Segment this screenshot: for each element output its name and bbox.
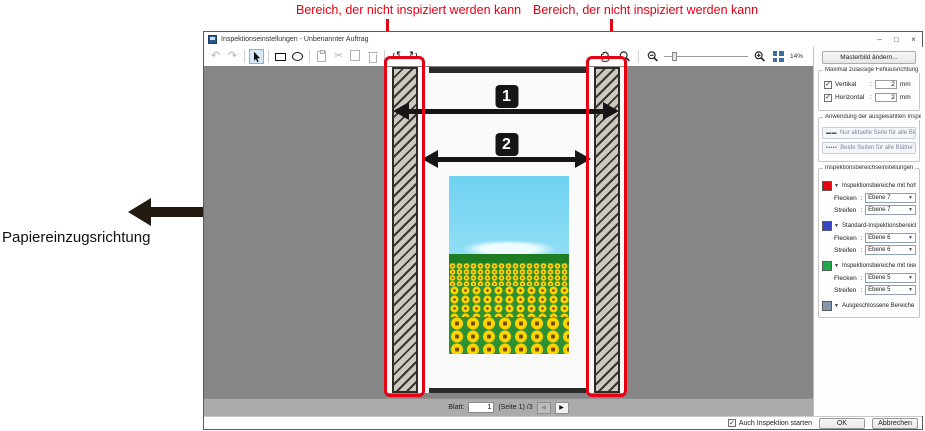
sheet-navigation-bar: Blatt: (Seite 1) /3 ◀ ▶ <box>204 398 813 416</box>
vertical-label: Vertikal <box>835 81 867 88</box>
misalignment-group-title: Maximal zulässige Fehlausrichtung <box>823 67 920 73</box>
toolbar-separator <box>309 50 310 63</box>
flecken-level-select[interactable]: Ebene 5 ▼ <box>865 273 916 283</box>
inspection-areas-group: Inspektionsbereichseinstellungen ▼ Inspe… <box>818 168 920 318</box>
streifen-row: Streifen : Ebene 6 ▼ <box>834 245 916 255</box>
preview-canvas[interactable]: 1 2 <box>204 66 813 398</box>
next-sheet-button[interactable]: ▶ <box>555 402 569 414</box>
sheet-number-input[interactable] <box>468 402 494 413</box>
streifen-level-select[interactable]: Ebene 6 ▼ <box>865 245 916 255</box>
flecken-level-select[interactable]: Ebene 7 ▼ <box>865 193 916 203</box>
horizontal-row: ✓ Horizontal : mm <box>824 93 916 102</box>
start-inspection-label: Auch Inspektion starten <box>739 420 812 427</box>
chevron-down-icon: ▼ <box>908 195 913 201</box>
streifen-row: Streifen : Ebene 5 ▼ <box>834 285 916 295</box>
chevron-down-icon[interactable]: ▼ <box>834 223 839 229</box>
minimize-button[interactable]: – <box>871 33 888 46</box>
toolbar-separator <box>638 50 639 63</box>
horizontal-unit: mm <box>900 94 911 101</box>
flecken-level-select[interactable]: Ebene 6 ▼ <box>865 233 916 243</box>
streifen-level-select[interactable]: Ebene 7 ▼ <box>865 205 916 215</box>
vertical-unit: mm <box>900 81 911 88</box>
measure-label-1: 1 <box>495 85 518 108</box>
annotation-not-inspectable-left: Bereich, der nicht inspiziert werden kan… <box>296 3 521 17</box>
apply-both-sides-button[interactable]: ••••• Beide Seiten für alle Blätter <box>822 142 916 154</box>
flecken-row: Flecken : Ebene 5 ▼ <box>834 273 916 283</box>
rectangle-tool-icon[interactable] <box>273 49 288 64</box>
start-inspection-checkbox[interactable]: ✓ <box>728 419 736 427</box>
misalignment-group: Maximal zulässige Fehlausrichtung ✓ Vert… <box>818 70 920 111</box>
dialog-footer: ✓ Auch Inspektion starten OK Abbrechen <box>204 416 922 429</box>
settings-panel: Masterbild ändern... Maximal zulässige F… <box>813 47 924 416</box>
horizontal-value-input[interactable] <box>875 93 897 102</box>
redo-icon[interactable]: ↷ <box>225 49 240 64</box>
pages-icon: ▬▬ <box>826 130 837 136</box>
paper-feed-arrow-icon <box>128 198 204 226</box>
zoom-slider[interactable] <box>664 51 748 62</box>
cut-icon[interactable]: ✂ <box>331 49 346 64</box>
maximize-button[interactable]: □ <box>888 33 905 46</box>
undo-icon[interactable]: ↶ <box>208 49 223 64</box>
vertical-checkbox[interactable]: ✓ <box>824 81 832 89</box>
low-priority-area-header: ▼ Inspektionsbereiche mit niedriger Prio… <box>822 261 916 271</box>
zoom-slider-thumb[interactable] <box>672 52 677 61</box>
titlebar: Inspektionseinstellungen - Unbenannter A… <box>204 32 922 47</box>
fit-to-window-icon[interactable] <box>771 49 786 64</box>
chevron-down-icon[interactable]: ▼ <box>834 303 839 309</box>
measure-label-2: 2 <box>495 133 518 156</box>
streifen-row: Streifen : Ebene 7 ▼ <box>834 205 916 215</box>
zoom-out-icon[interactable] <box>645 49 660 64</box>
high-priority-color-swatch[interactable] <box>822 181 832 191</box>
close-button[interactable]: × <box>905 33 922 46</box>
excluded-area-header: ▼ Ausgeschlossene Bereiche <box>822 301 916 311</box>
start-inspection-check-group: ✓ Auch Inspektion starten <box>728 419 812 427</box>
standard-color-swatch[interactable] <box>822 221 832 231</box>
chevron-down-icon: ▼ <box>908 235 913 241</box>
annotation-not-inspectable-right: Bereich, der nicht inspiziert werden kan… <box>533 3 758 17</box>
delete-icon[interactable] <box>365 49 380 64</box>
chevron-down-icon: ▼ <box>908 247 913 253</box>
screenshot-page: Bereich, der nicht inspiziert werden kan… <box>0 0 925 431</box>
inspection-settings-window: Inspektionseinstellungen - Unbenannter A… <box>203 31 923 430</box>
toolbar: ↶ ↷ ✂ ↺ ↻ <box>204 47 813 66</box>
excluded-color-swatch[interactable] <box>822 301 832 311</box>
standard-area-header: ▼ Standard-Inspektionsbereiche <box>822 221 916 231</box>
apply-group-title: Anwendung der ausgewählten Inspektionsbe… <box>823 114 921 120</box>
zoom-percentage: 14% <box>790 53 803 60</box>
paper-feed-label: Papiereinzugsrichtung <box>2 229 150 246</box>
select-tool-icon[interactable] <box>249 49 264 64</box>
streifen-level-select[interactable]: Ebene 5 ▼ <box>865 285 916 295</box>
apply-areas-group: Anwendung der ausgewählten Inspektionsbe… <box>818 117 920 162</box>
chevron-down-icon: ▼ <box>908 207 913 213</box>
sheet-label: Blatt: <box>448 404 464 411</box>
flecken-row: Flecken : Ebene 7 ▼ <box>834 193 916 203</box>
horizontal-checkbox[interactable]: ✓ <box>824 94 832 102</box>
areas-group-title: Inspektionsbereichseinstellungen <box>823 165 915 171</box>
vertical-row: ✓ Vertikal : mm <box>824 80 916 89</box>
zoom-in-icon[interactable] <box>752 49 767 64</box>
sheet-top-edge <box>429 67 586 73</box>
change-master-image-button[interactable]: Masterbild ändern... <box>822 51 916 64</box>
dots-icon: ••••• <box>826 145 837 151</box>
chevron-down-icon[interactable]: ▼ <box>834 183 839 189</box>
sunflower-field-image <box>449 176 569 354</box>
cancel-button[interactable]: Abbrechen <box>872 418 918 429</box>
annotation-red-box-left <box>384 56 425 397</box>
toolbar-separator <box>268 50 269 63</box>
copy-icon[interactable] <box>348 49 363 64</box>
paste-icon[interactable] <box>314 49 329 64</box>
annotation-red-box-right <box>586 56 627 397</box>
window-title: Inspektionseinstellungen - Unbenannter A… <box>221 36 369 43</box>
low-priority-color-swatch[interactable] <box>822 261 832 271</box>
chevron-down-icon[interactable]: ▼ <box>834 263 839 269</box>
apply-current-side-button[interactable]: ▬▬ Nur aktuelle Seite für alle Blätter <box>822 127 916 139</box>
previous-sheet-button[interactable]: ◀ <box>537 402 551 414</box>
ellipse-tool-icon[interactable] <box>290 49 305 64</box>
vertical-value-input[interactable] <box>875 80 897 89</box>
chevron-down-icon: ▼ <box>908 275 913 281</box>
ok-button[interactable]: OK <box>819 418 865 429</box>
chevron-down-icon: ▼ <box>908 287 913 293</box>
toolbar-separator <box>244 50 245 63</box>
high-priority-area-header: ▼ Inspektionsbereiche mit hoher Prioritä… <box>822 181 916 191</box>
app-icon <box>208 35 217 44</box>
horizontal-label: Horizontal <box>835 94 867 101</box>
page-info: (Seite 1) /3 <box>498 404 532 411</box>
sheet-bottom-edge <box>429 388 586 393</box>
flecken-row: Flecken : Ebene 6 ▼ <box>834 233 916 243</box>
